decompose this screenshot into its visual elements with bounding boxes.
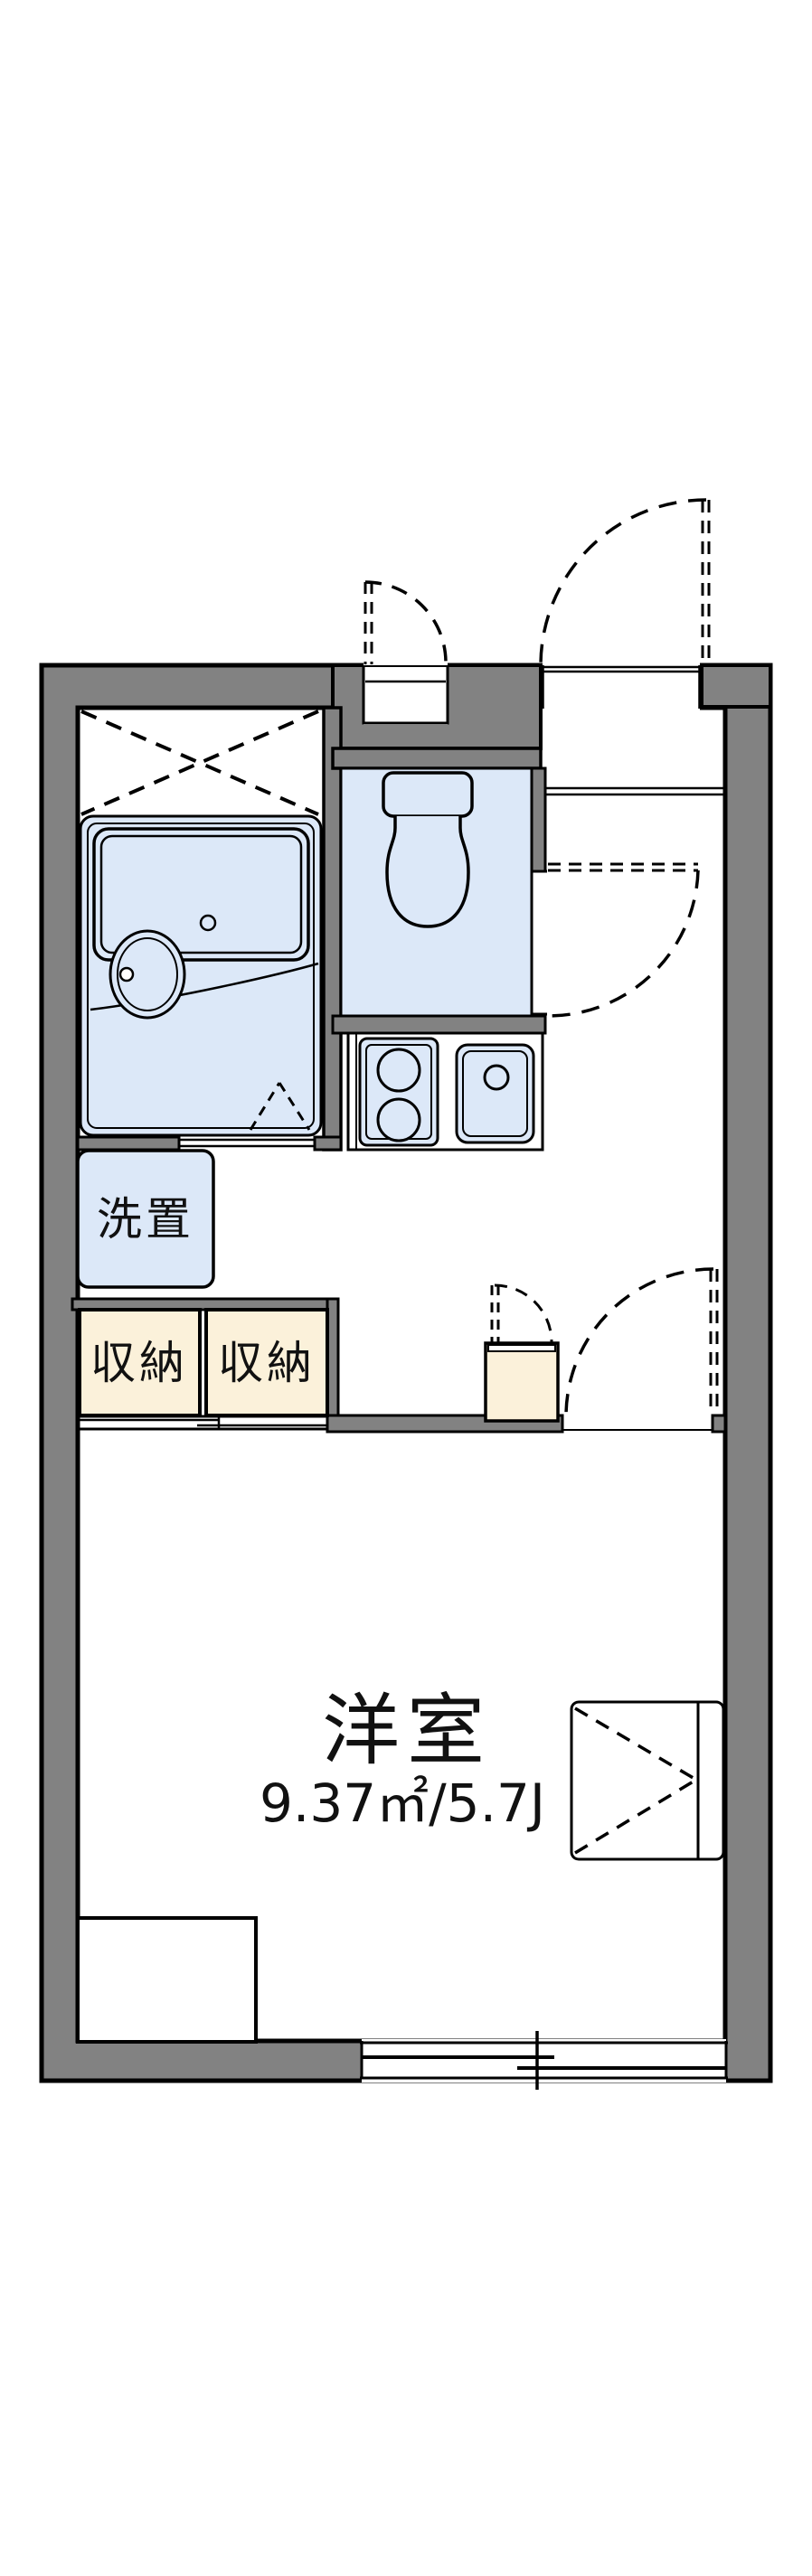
heater-box-body	[486, 1343, 558, 1421]
toilet-tank	[383, 773, 472, 816]
entry-step	[545, 788, 725, 794]
entry-door-arc	[541, 500, 706, 665]
floorplan-page: 洗置 収納 収納	[0, 0, 812, 2576]
wall-toilet-bottom	[333, 1016, 545, 1033]
wall-room-door-stub	[713, 1415, 725, 1432]
side-window-unit	[571, 1702, 723, 1859]
kitchen	[348, 1033, 543, 1150]
sink-basin-outer	[457, 1045, 533, 1142]
bathroom	[80, 711, 321, 1146]
heater-door-arc	[495, 1285, 552, 1342]
wall-toilet-right-upper	[532, 768, 545, 871]
storage-area: 洗置 収納 収納	[78, 1151, 327, 1429]
main-room-name: 洋室	[322, 1686, 492, 1776]
room-door-arc	[566, 1269, 713, 1416]
sink-faucet	[485, 1066, 508, 1089]
water-heater-box	[486, 1343, 558, 1421]
closet-left-label: 収納	[90, 1337, 188, 1389]
toilet-door-arc	[548, 870, 698, 1016]
stove-burner-top	[378, 1049, 420, 1091]
stove-burner-bottom	[378, 1099, 420, 1141]
niche-door-arc	[365, 582, 446, 663]
bottom-window	[360, 2031, 728, 2090]
floorplan-drawing: 洗置 収納 収納	[0, 0, 812, 2576]
entry-door-opening	[543, 662, 700, 710]
bath-basin-knob	[120, 968, 133, 981]
corner-furniture-rect	[78, 1918, 256, 2042]
wall-block-entry-corner	[702, 665, 770, 707]
closet-right-label: 収納	[218, 1337, 316, 1389]
wall-toilet-top	[333, 748, 541, 768]
washer-space-label: 洗置	[97, 1193, 194, 1246]
meter-niche	[364, 663, 448, 725]
toilet-bowl	[387, 816, 468, 926]
main-room-area: 9.37㎡/5.7J	[260, 1772, 545, 1834]
toilet-room	[341, 768, 532, 1016]
wall-bath-right	[324, 708, 341, 1150]
wall-bath-bottom-right	[315, 1137, 341, 1150]
bottom-window-opening	[362, 2039, 726, 2082]
main-room: 洋室 9.37㎡/5.7J	[78, 1686, 723, 2042]
wall-bath-bottom-left	[78, 1137, 179, 1150]
heater-box-front-strip	[488, 1345, 555, 1351]
